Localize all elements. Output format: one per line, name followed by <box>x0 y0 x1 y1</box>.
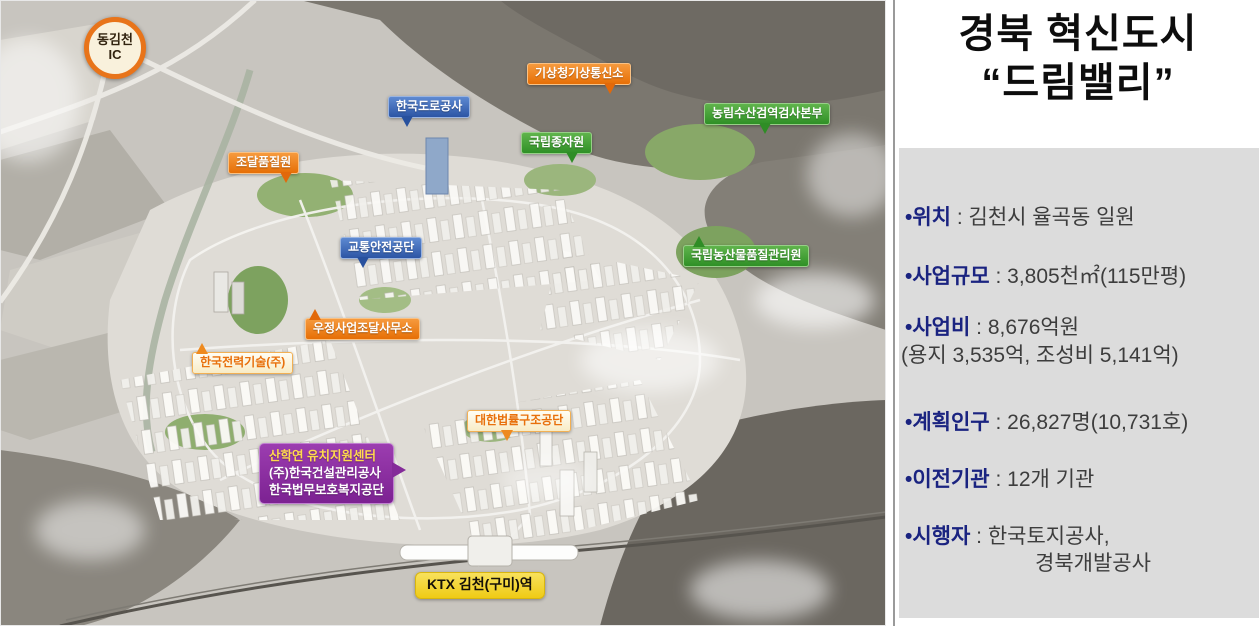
ic-badge-line1: 동김천 <box>89 33 141 48</box>
info-item-implementer: •시행자 : 한국토지공사, <box>905 524 1110 549</box>
info-separator: : <box>970 316 988 339</box>
ic-badge-line2: IC <box>89 48 141 63</box>
support-center-line3: 한국법무보호복지공단 <box>269 482 384 499</box>
map-label-procurement-quality-inst: 조달품질원 <box>228 152 299 174</box>
map-label-korea-expressway-corp: 한국도로공사 <box>388 96 470 118</box>
info-label: •시행자 <box>905 525 970 548</box>
info-separator: : <box>951 206 969 229</box>
info-label: •위치 <box>905 206 951 229</box>
map-label-postal-procurement-office: 우정사업조달사무소 <box>305 318 420 340</box>
page-title-line2: “드림밸리” <box>897 59 1259 108</box>
info-label: •계획인구 <box>905 411 990 434</box>
info-label: •사업비 <box>905 316 970 339</box>
info-separator: : <box>970 525 988 548</box>
map-label-legal-aid-corp: 대한법률구조공단 <box>467 410 571 432</box>
map-illustration <box>0 0 886 626</box>
info-value: 3,805천㎡(115만평) <box>1007 265 1186 288</box>
info-value: 8,676억원 <box>988 316 1079 339</box>
info-value: 12개 기관 <box>1007 468 1094 491</box>
screenshot-root: 동김천 IC 기상청기상통신소 한국도로공사 농림수산검역검사본부 국립종자원 … <box>0 0 1259 626</box>
info-item-project-cost-breakdown: (용지 3,535억, 조성비 5,141억) <box>901 343 1179 368</box>
info-separator: : <box>990 411 1008 434</box>
info-value: 한국토지공사, <box>988 525 1110 548</box>
map-badge-donggimcheon-ic: 동김천 IC <box>84 17 146 79</box>
info-value: 김천시 율곡동 일원 <box>969 206 1135 229</box>
map-area: 동김천 IC 기상청기상통신소 한국도로공사 농림수산검역검사본부 국립종자원 … <box>0 0 886 626</box>
support-center-line2: (주)한국건설관리공사 <box>269 465 384 482</box>
info-item-project-scale: •사업규모 : 3,805천㎡(115만평) <box>905 264 1186 289</box>
map-label-traffic-safety-authority: 교통안전공단 <box>340 237 422 259</box>
info-item-relocated-agencies: •이전기관 : 12개 기관 <box>905 467 1094 492</box>
page-title-line1: 경북 혁신도시 <box>897 10 1259 59</box>
page-title: 경북 혁신도시 “드림밸리” <box>897 10 1259 108</box>
info-separator: : <box>990 468 1008 491</box>
info-item-project-cost: •사업비 : 8,676억원 <box>905 315 1079 340</box>
map-label-ktx-station: KTX 김천(구미)역 <box>415 572 545 599</box>
info-label: •사업규모 <box>905 265 990 288</box>
map-label-weather-comm-station: 기상청기상통신소 <box>527 63 631 85</box>
info-item-location: •위치 : 김천시 율곡동 일원 <box>905 205 1135 230</box>
info-item-implementer-line2: 경북개발공사 <box>1035 551 1151 576</box>
info-panel: 경북 혁신도시 “드림밸리” •위치 : 김천시 율곡동 일원 •사업규모 : … <box>897 0 1259 626</box>
map-label-agri-products-quality-service: 국립농산물품질관리원 <box>683 245 809 267</box>
map-label-agri-quarantine-hq: 농림수산검역검사본부 <box>704 103 830 125</box>
info-separator: : <box>990 265 1008 288</box>
panel-divider <box>893 0 895 626</box>
map-label-national-seed-agency: 국립종자원 <box>521 132 592 154</box>
info-item-planned-population: •계획인구 : 26,827명(10,731호) <box>905 410 1188 435</box>
support-center-line1: 산학연 유치지원센터 <box>269 448 384 465</box>
map-label-kepco-engineering: 한국전력기술(주) <box>192 352 293 374</box>
info-value: 26,827명(10,731호) <box>1007 411 1188 434</box>
map-label-support-center-group: 산학연 유치지원센터 (주)한국건설관리공사 한국법무보호복지공단 <box>259 443 394 504</box>
info-label: •이전기관 <box>905 468 990 491</box>
